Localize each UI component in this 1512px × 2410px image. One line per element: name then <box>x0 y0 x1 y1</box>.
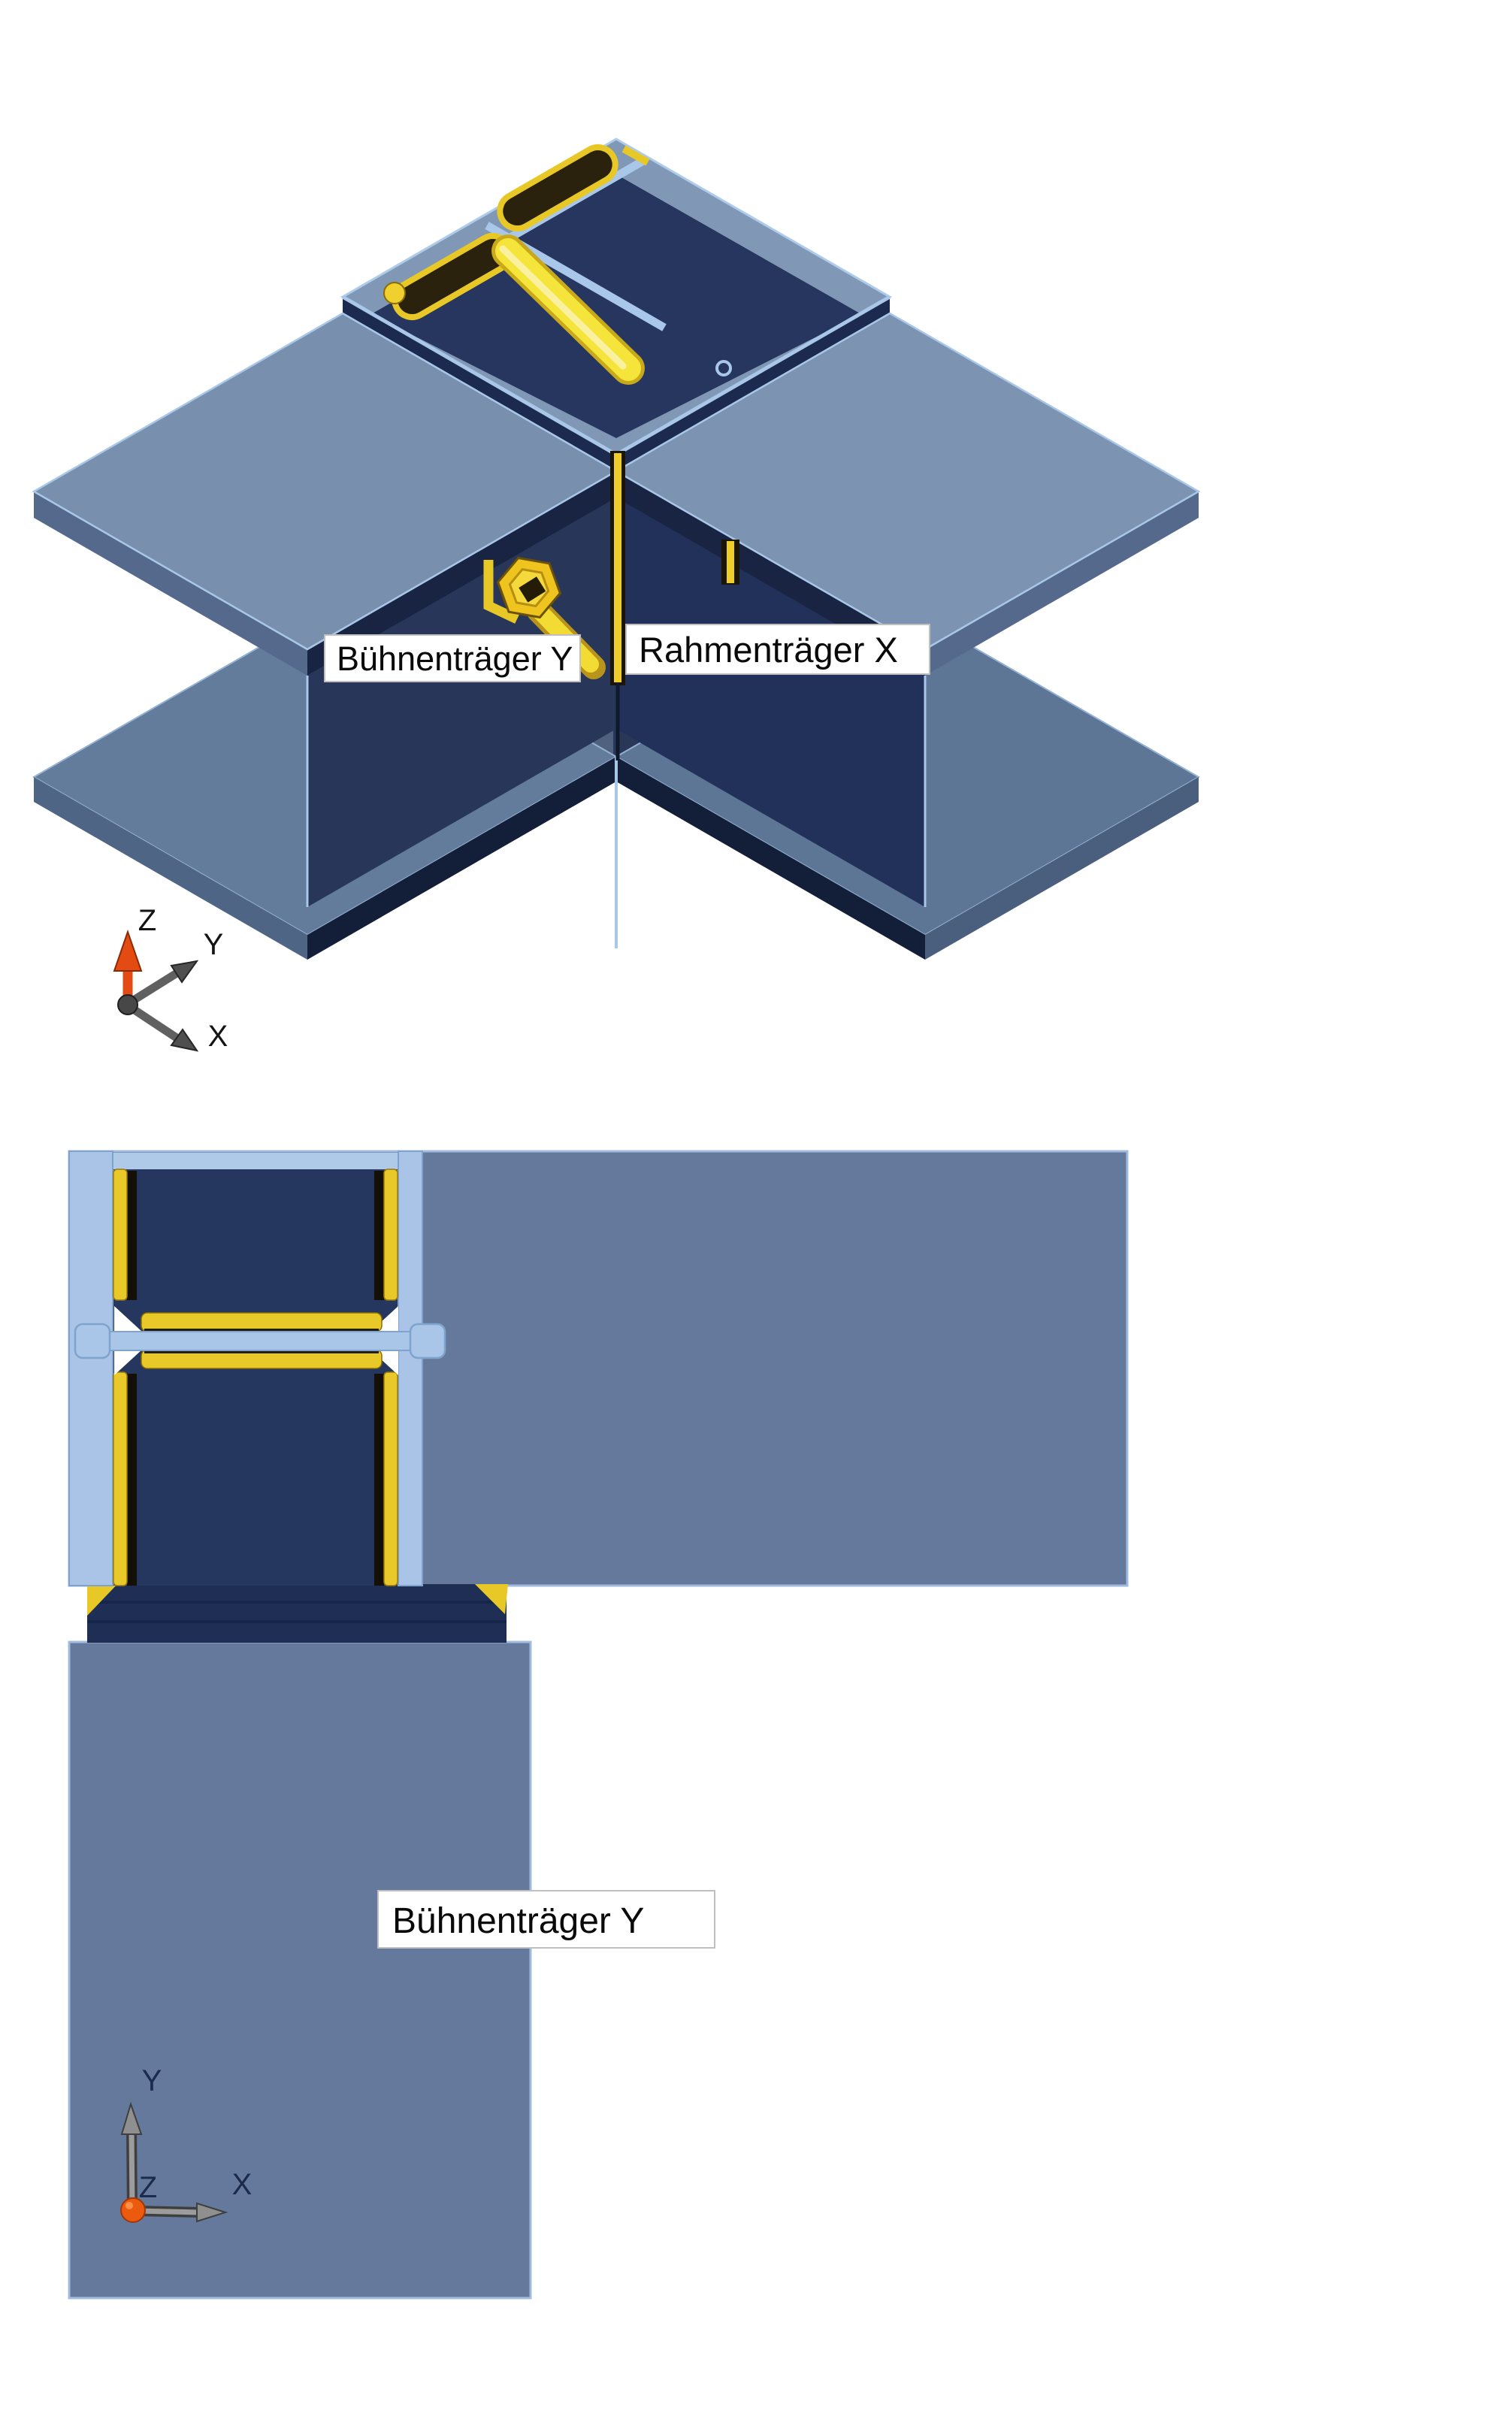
plan-weld-right <box>374 1169 398 1586</box>
plan-top-edge-strip <box>69 1153 422 1169</box>
label-beam-y-plan-text: Bühnenträger Y <box>392 1901 644 1941</box>
plan-axis-z-label: Z <box>139 2171 157 2204</box>
page: Bühnenträger Y Rahmenträger X Z Y X <box>0 0 1512 2410</box>
plan-flange-strip-right <box>398 1151 422 1586</box>
axis-y-arrow-icon <box>171 961 197 982</box>
label-beam-x-3d-text: Rahmenträger X <box>639 630 898 670</box>
axis-x-shaft-icon <box>132 1008 179 1039</box>
label-beam-y-3d-text: Bühnenträger Y <box>337 640 573 678</box>
plan-axis-origin-dot-icon <box>121 2198 145 2222</box>
label-beam-y-3d: Bühnenträger Y <box>325 635 580 682</box>
axis-y-shaft-icon <box>132 971 180 1001</box>
iso-view: Bühnenträger Y Rahmenträger X Z Y X <box>34 139 1199 1053</box>
axis-y-label: Y <box>204 928 224 961</box>
plan-flange-edge-band <box>87 1581 508 1643</box>
axis-triad-3d: Z Y X <box>114 904 228 1053</box>
plan-view: Bühnenträger Y Z Y X <box>69 1151 1127 2298</box>
plan-round-bar-cap-left <box>75 1324 110 1358</box>
plan-connection-zone <box>69 1151 445 1586</box>
plan-weld-left <box>113 1169 137 1586</box>
plan-axis-y-label: Y <box>142 2064 162 2097</box>
axis-z-label: Z <box>138 904 156 937</box>
plan-flange-strip-left <box>69 1151 113 1586</box>
plan-axis-x-label: X <box>232 2168 253 2201</box>
axis-x-label: X <box>208 1020 228 1053</box>
axis-origin-ball-icon <box>118 995 138 1014</box>
label-beam-y-plan: Bühnenträger Y <box>378 1891 715 1948</box>
label-beam-x-3d: Rahmenträger X <box>626 624 930 674</box>
plan-round-bar-cap-right <box>410 1324 445 1358</box>
axis-z-arrow-icon <box>114 932 141 971</box>
plan-cover-plate <box>113 1169 402 1586</box>
weld-dot <box>384 283 405 304</box>
